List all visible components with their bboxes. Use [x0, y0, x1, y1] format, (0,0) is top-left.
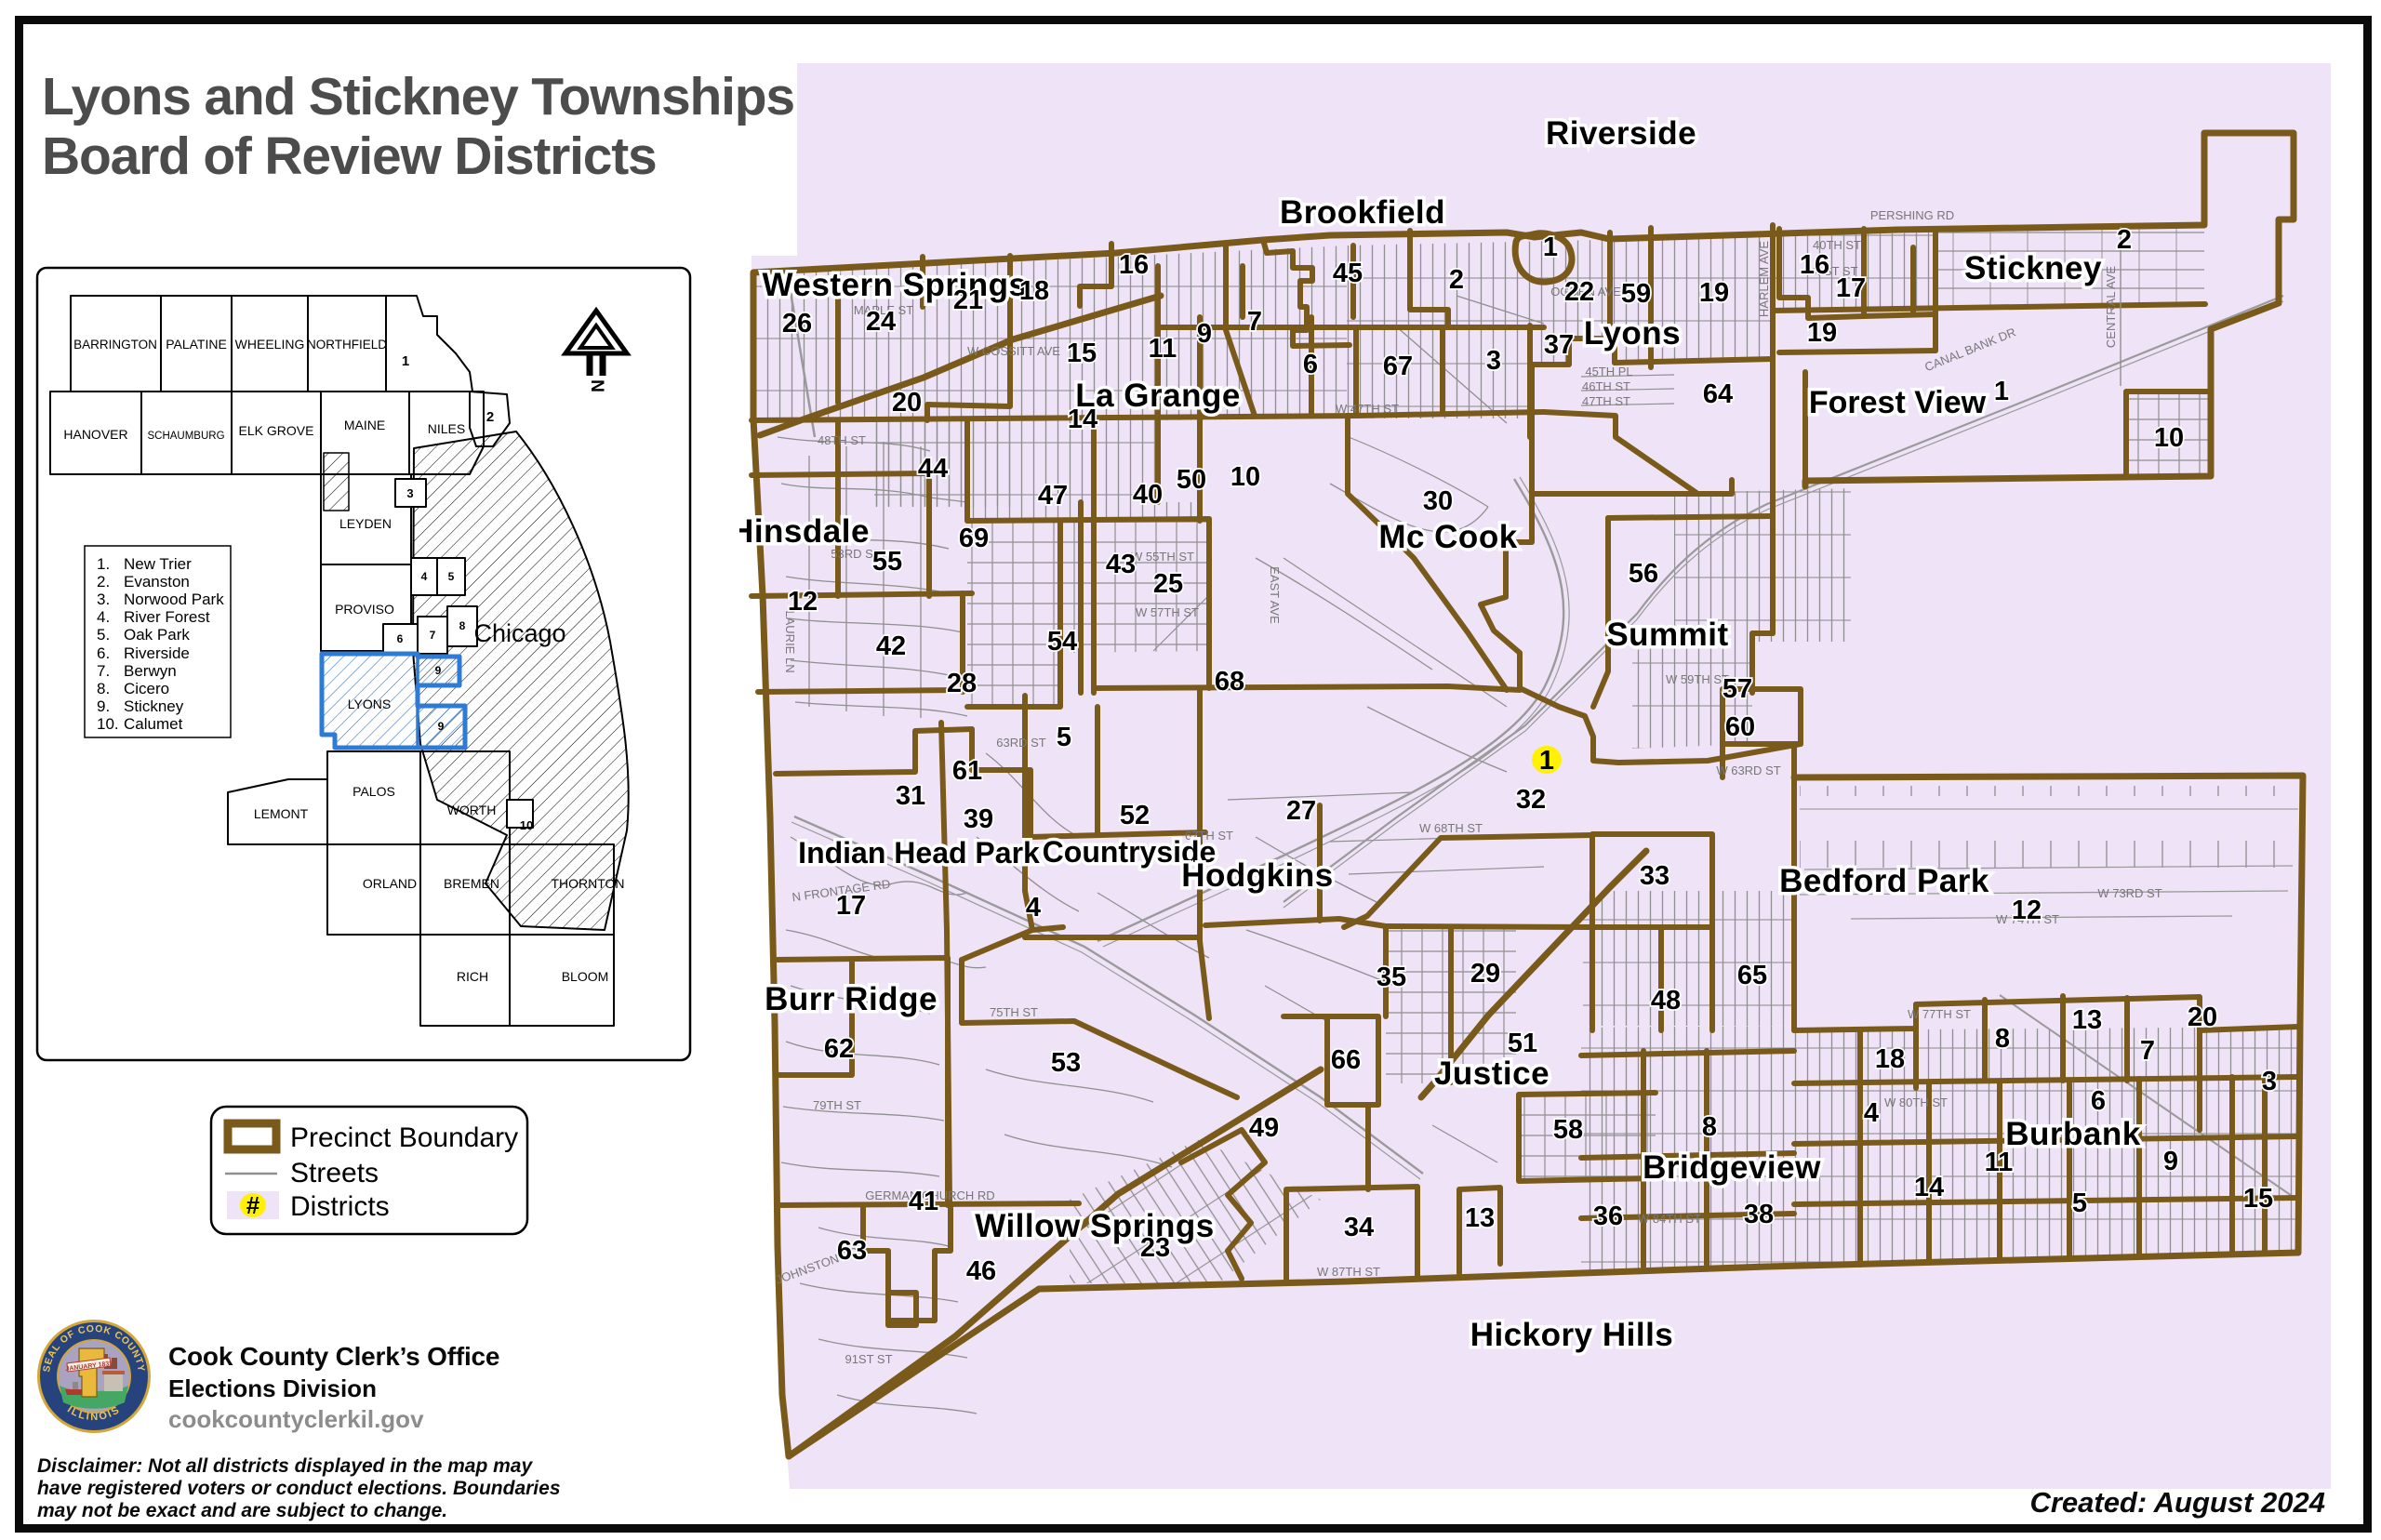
svg-text:52: 52 — [1120, 801, 1150, 830]
svg-text:W 77TH ST: W 77TH ST — [1908, 1007, 1971, 1021]
svg-text:2: 2 — [2117, 225, 2132, 255]
svg-text:14: 14 — [1914, 1173, 1944, 1202]
svg-text:17: 17 — [1836, 273, 1866, 303]
svg-text:ELK GROVE: ELK GROVE — [239, 423, 314, 438]
svg-text:5: 5 — [1057, 723, 1071, 752]
svg-text:37: 37 — [1544, 330, 1574, 360]
svg-text:10: 10 — [1230, 462, 1260, 492]
svg-text:W 87TH ST: W 87TH ST — [1317, 1265, 1380, 1279]
svg-text:46TH ST: 46TH ST — [1582, 379, 1630, 393]
svg-text:Calumet: Calumet — [124, 715, 183, 733]
svg-text:91ST ST: 91ST ST — [845, 1352, 892, 1366]
svg-text:20: 20 — [2188, 1002, 2217, 1032]
svg-text:9.: 9. — [97, 697, 110, 715]
svg-text:BLOOM: BLOOM — [562, 969, 609, 984]
svg-text:8: 8 — [1995, 1024, 2010, 1054]
svg-text:Hickory Hills: Hickory Hills — [1470, 1317, 1674, 1353]
svg-text:18: 18 — [1875, 1044, 1905, 1074]
svg-text:PALOS: PALOS — [352, 784, 395, 799]
svg-text:36: 36 — [1593, 1201, 1623, 1231]
svg-text:River Forest: River Forest — [124, 608, 210, 626]
svg-text:22: 22 — [1564, 277, 1594, 307]
svg-text:7: 7 — [430, 629, 436, 642]
svg-text:Justice: Justice — [1434, 1055, 1550, 1092]
svg-text:Willow Springs: Willow Springs — [975, 1208, 1215, 1244]
svg-text:45: 45 — [1333, 259, 1363, 288]
svg-text:Forest View: Forest View — [1809, 385, 1987, 420]
svg-text:34: 34 — [1344, 1213, 1374, 1242]
svg-text:10.: 10. — [97, 715, 119, 733]
svg-text:THORNTON: THORNTON — [551, 876, 624, 891]
svg-text:2.: 2. — [97, 573, 110, 591]
svg-text:1: 1 — [1539, 746, 1554, 776]
svg-text:8: 8 — [1702, 1112, 1717, 1142]
svg-text:63RD ST: 63RD ST — [996, 736, 1046, 750]
svg-text:44: 44 — [918, 454, 948, 484]
svg-text:7: 7 — [2140, 1036, 2155, 1066]
svg-text:1: 1 — [402, 353, 409, 369]
svg-text:BREMEN: BREMEN — [444, 876, 499, 891]
svg-text:13: 13 — [2072, 1005, 2102, 1035]
svg-text:PALATINE: PALATINE — [166, 337, 227, 352]
svg-text:4: 4 — [421, 570, 428, 583]
svg-text:69: 69 — [959, 524, 989, 553]
svg-text:9: 9 — [438, 720, 445, 733]
svg-text:47TH ST: 47TH ST — [1582, 394, 1630, 408]
svg-text:W 47TH ST: W 47TH ST — [1336, 402, 1399, 416]
svg-text:30: 30 — [1423, 486, 1453, 516]
svg-text:3.: 3. — [97, 591, 110, 608]
svg-text:2: 2 — [1449, 265, 1464, 295]
svg-text:43: 43 — [1106, 550, 1136, 579]
svg-text:4.: 4. — [97, 608, 110, 626]
svg-text:31: 31 — [896, 781, 925, 811]
svg-text:MAINE: MAINE — [344, 418, 385, 432]
svg-text:Oak Park: Oak Park — [124, 626, 190, 644]
svg-text:WORTH: WORTH — [447, 803, 497, 817]
svg-text:8.: 8. — [97, 680, 110, 697]
svg-text:Districts: Districts — [290, 1191, 390, 1222]
svg-text:8: 8 — [459, 619, 466, 632]
svg-text:EAST AVE: EAST AVE — [1268, 566, 1282, 624]
svg-text:CENTRAL AVE: CENTRAL AVE — [2104, 266, 2118, 348]
svg-text:#: # — [246, 1191, 260, 1219]
svg-text:57: 57 — [1723, 674, 1752, 704]
svg-text:2: 2 — [486, 409, 494, 425]
svg-text:La Grange: La Grange — [1075, 378, 1241, 414]
svg-text:Burbank: Burbank — [2005, 1116, 2141, 1152]
svg-text:10: 10 — [2154, 423, 2184, 453]
svg-text:53: 53 — [1051, 1048, 1081, 1078]
svg-text:48: 48 — [1651, 986, 1681, 1016]
svg-text:45TH PL: 45TH PL — [1585, 365, 1632, 378]
svg-text:46: 46 — [966, 1256, 996, 1286]
svg-text:41: 41 — [909, 1187, 938, 1216]
svg-text:Hodgkins: Hodgkins — [1181, 857, 1333, 894]
svg-text:Bridgeview: Bridgeview — [1643, 1149, 1821, 1186]
svg-text:14: 14 — [1068, 405, 1097, 434]
svg-text:NORTHFIELD: NORTHFIELD — [307, 338, 387, 352]
svg-text:29: 29 — [1470, 959, 1500, 989]
svg-text:Streets: Streets — [290, 1158, 379, 1188]
svg-text:ORLAND: ORLAND — [363, 876, 417, 891]
svg-text:35: 35 — [1377, 962, 1406, 992]
svg-text:9: 9 — [435, 664, 442, 677]
svg-text:1: 1 — [1994, 377, 2009, 406]
svg-text:Riverside: Riverside — [124, 644, 190, 662]
svg-text:12: 12 — [788, 587, 818, 617]
svg-text:Norwood Park: Norwood Park — [124, 591, 224, 608]
svg-text:75TH ST: 75TH ST — [990, 1005, 1038, 1019]
svg-text:62: 62 — [824, 1034, 854, 1064]
svg-text:40: 40 — [1133, 480, 1163, 510]
svg-text:24: 24 — [866, 307, 896, 337]
svg-text:7.: 7. — [97, 662, 110, 680]
svg-text:56: 56 — [1629, 559, 1658, 589]
svg-text:New Trier: New Trier — [124, 555, 192, 573]
svg-text:21: 21 — [953, 285, 983, 315]
svg-text:5: 5 — [448, 570, 455, 583]
svg-text:LYONS: LYONS — [348, 697, 391, 711]
svg-text:15: 15 — [2243, 1184, 2273, 1214]
svg-text:68: 68 — [1215, 667, 1244, 697]
svg-text:79TH ST: 79TH ST — [813, 1098, 861, 1112]
svg-text:59: 59 — [1621, 279, 1651, 309]
svg-text:54: 54 — [1047, 627, 1077, 657]
svg-text:16: 16 — [1119, 250, 1149, 280]
svg-text:PERSHING RD: PERSHING RD — [1870, 208, 1954, 222]
svg-text:55: 55 — [872, 547, 902, 577]
svg-text:48TH ST: 48TH ST — [818, 433, 866, 447]
svg-text:17: 17 — [836, 891, 866, 921]
svg-text:42: 42 — [876, 631, 906, 661]
svg-text:3: 3 — [2262, 1067, 2277, 1096]
svg-text:58: 58 — [1553, 1115, 1583, 1145]
svg-text:4: 4 — [1026, 893, 1041, 923]
svg-text:Stickney: Stickney — [1964, 250, 2102, 286]
svg-text:5.: 5. — [97, 626, 110, 644]
svg-text:60: 60 — [1725, 712, 1755, 742]
svg-text:LEYDEN: LEYDEN — [339, 516, 392, 531]
svg-text:67: 67 — [1383, 352, 1413, 381]
svg-text:19: 19 — [1807, 318, 1837, 348]
svg-text:6: 6 — [1303, 350, 1318, 379]
svg-text:6.: 6. — [97, 644, 110, 662]
svg-text:Summit: Summit — [1606, 617, 1728, 653]
svg-text:Hinsdale: Hinsdale — [739, 513, 870, 550]
svg-text:51: 51 — [1508, 1029, 1537, 1058]
svg-text:W 68TH ST: W 68TH ST — [1419, 821, 1483, 835]
svg-text:12: 12 — [2012, 896, 2042, 925]
svg-text:64: 64 — [1703, 379, 1733, 409]
svg-text:W COSSITT AVE: W COSSITT AVE — [967, 344, 1060, 358]
svg-text:61: 61 — [952, 756, 982, 786]
svg-text:NILES: NILES — [428, 421, 465, 436]
svg-text:7: 7 — [1247, 307, 1262, 337]
svg-text:Chicago: Chicago — [473, 619, 565, 647]
svg-text:W 84TH ST: W 84TH ST — [1638, 1212, 1701, 1226]
svg-text:1: 1 — [1543, 232, 1558, 262]
svg-text:HANOVER: HANOVER — [63, 427, 127, 442]
svg-text:Bedford Park: Bedford Park — [1779, 863, 1989, 899]
svg-text:16: 16 — [1800, 250, 1829, 280]
svg-text:Burr Ridge: Burr Ridge — [765, 981, 938, 1017]
svg-text:RICH: RICH — [457, 969, 488, 984]
svg-text:Berwyn: Berwyn — [124, 662, 177, 680]
svg-text:28: 28 — [947, 669, 977, 698]
svg-text:Western Springs: Western Springs — [763, 267, 1028, 303]
svg-text:W 63RD ST: W 63RD ST — [1716, 763, 1780, 777]
svg-text:9: 9 — [2163, 1147, 2178, 1176]
svg-text:39: 39 — [964, 804, 993, 834]
svg-text:PROVISO: PROVISO — [335, 602, 394, 617]
svg-text:Stickney: Stickney — [124, 697, 184, 715]
svg-text:Riverside: Riverside — [1546, 115, 1696, 152]
svg-text:W 57TH ST: W 57TH ST — [1136, 605, 1199, 619]
svg-text:13: 13 — [1465, 1203, 1495, 1233]
svg-text:1.: 1. — [97, 555, 110, 573]
svg-text:3: 3 — [1486, 346, 1501, 376]
svg-text:N: N — [587, 379, 606, 392]
svg-text:15: 15 — [1067, 339, 1097, 368]
svg-text:6: 6 — [2091, 1086, 2106, 1116]
svg-text:49: 49 — [1249, 1113, 1279, 1143]
svg-text:LEMONT: LEMONT — [254, 806, 309, 821]
svg-text:W 59TH ST: W 59TH ST — [1666, 672, 1729, 686]
svg-text:SCHAUMBURG: SCHAUMBURG — [147, 431, 224, 442]
svg-text:65: 65 — [1737, 961, 1767, 990]
svg-text:Evanston: Evanston — [124, 573, 190, 591]
svg-text:32: 32 — [1516, 785, 1546, 815]
svg-text:11: 11 — [1149, 334, 1177, 364]
svg-text:19: 19 — [1699, 278, 1729, 308]
svg-text:Indian Head Park: Indian Head Park — [798, 836, 1040, 870]
svg-text:4: 4 — [1864, 1098, 1879, 1128]
svg-text:23: 23 — [1140, 1233, 1170, 1263]
svg-text:47: 47 — [1038, 481, 1068, 511]
svg-text:Lyons: Lyons — [1584, 315, 1681, 352]
svg-text:WHEELING: WHEELING — [235, 337, 305, 352]
svg-text:BARRINGTON: BARRINGTON — [73, 338, 157, 352]
svg-text:3: 3 — [406, 486, 413, 500]
svg-text:50: 50 — [1177, 465, 1206, 495]
svg-text:20: 20 — [892, 388, 922, 418]
svg-text:10: 10 — [520, 818, 533, 832]
svg-text:W 80TH ST: W 80TH ST — [1884, 1095, 1948, 1109]
svg-text:11: 11 — [1985, 1148, 2014, 1177]
svg-text:26: 26 — [782, 309, 812, 339]
svg-text:Brookfield: Brookfield — [1280, 194, 1445, 231]
svg-text:Precinct Boundary: Precinct Boundary — [290, 1122, 518, 1153]
svg-text:Mc Cook: Mc Cook — [1378, 519, 1517, 555]
svg-text:33: 33 — [1640, 861, 1669, 891]
svg-text:18: 18 — [1019, 276, 1049, 306]
svg-text:6: 6 — [397, 632, 404, 645]
svg-text:66: 66 — [1331, 1045, 1361, 1075]
svg-text:27: 27 — [1286, 796, 1316, 826]
svg-text:9: 9 — [1197, 319, 1212, 349]
svg-text:Cicero: Cicero — [124, 680, 169, 697]
svg-text:W 55TH ST: W 55TH ST — [1131, 550, 1194, 564]
svg-text:HARLEM AVE: HARLEM AVE — [1757, 241, 1771, 317]
svg-text:LAURIE LN: LAURIE LN — [783, 610, 797, 672]
svg-text:5: 5 — [2072, 1188, 2087, 1218]
svg-text:25: 25 — [1153, 569, 1183, 599]
svg-text:38: 38 — [1744, 1200, 1774, 1229]
svg-text:W 73RD ST: W 73RD ST — [2097, 886, 2162, 900]
svg-text:63: 63 — [837, 1236, 867, 1266]
